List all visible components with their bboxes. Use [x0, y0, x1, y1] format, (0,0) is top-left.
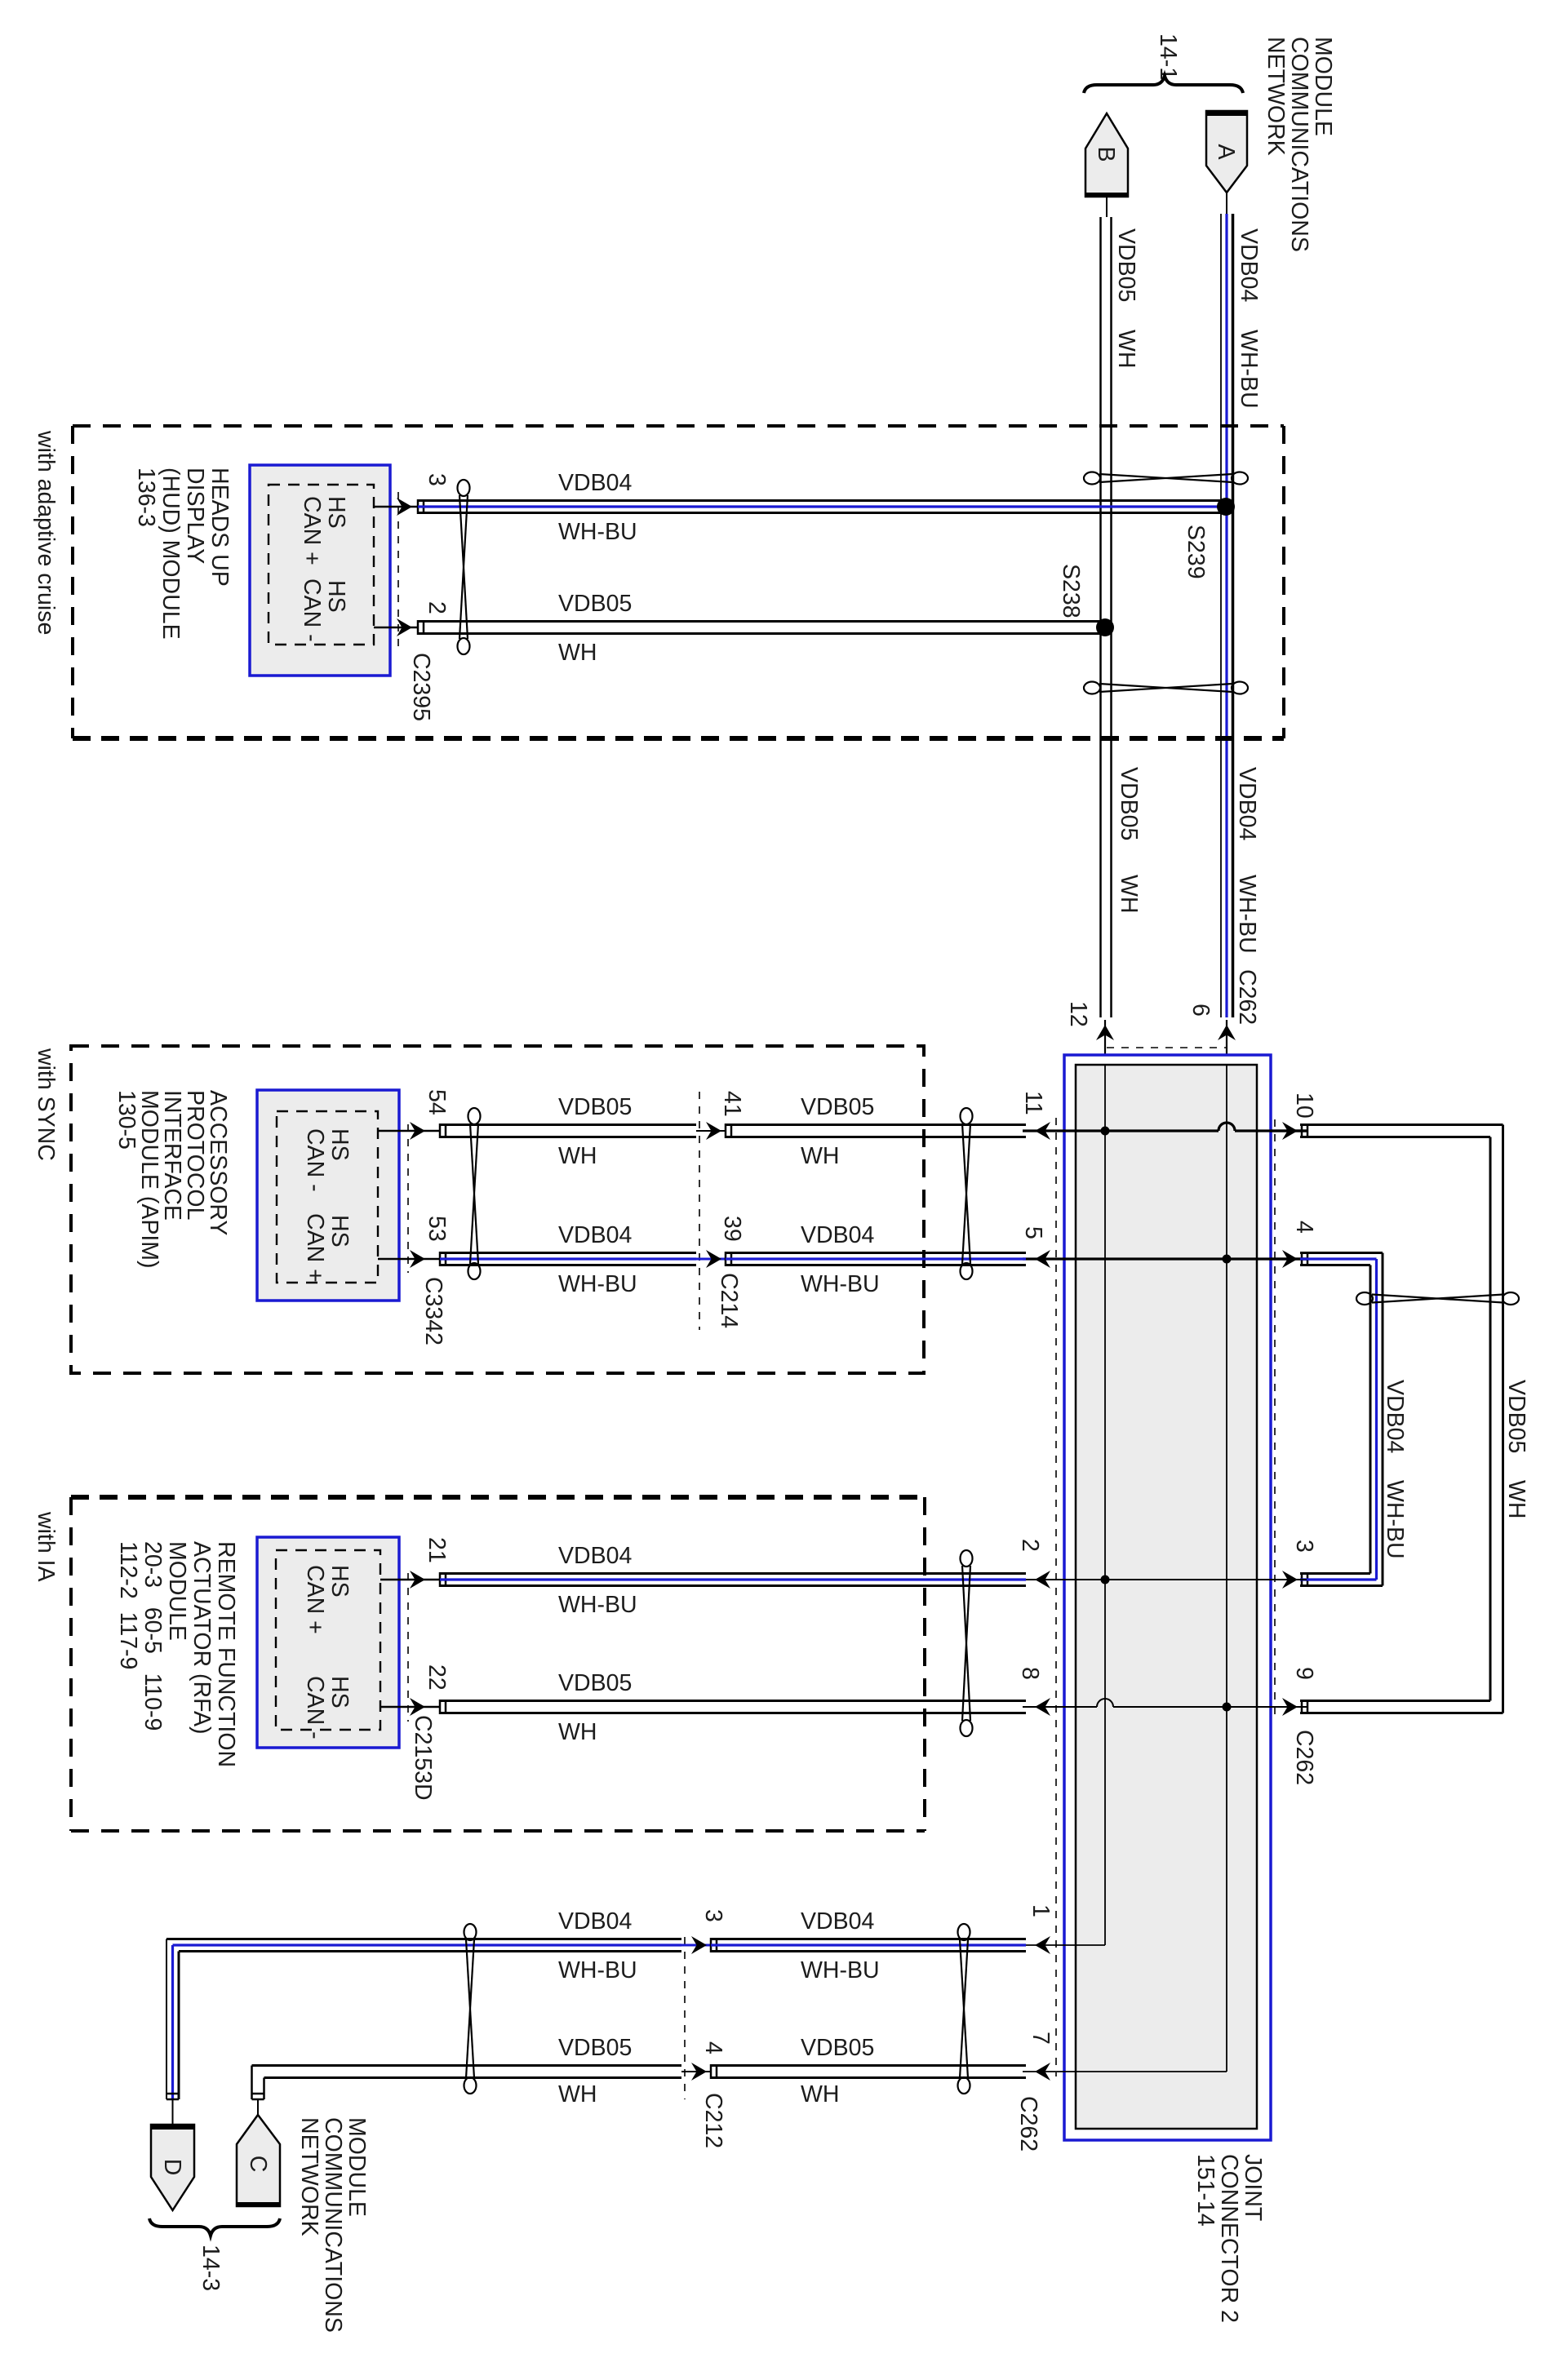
svg-text:151-14: 151-14 — [1192, 2154, 1219, 2227]
svg-text:with adaptive cruise: with adaptive cruise — [33, 430, 59, 635]
svg-text:CAN -: CAN - — [302, 1128, 328, 1192]
svg-text:VDB05: VDB05 — [558, 2035, 632, 2061]
svg-text:D: D — [159, 2159, 185, 2176]
svg-text:HS: HS — [326, 1676, 353, 1709]
svg-text:22: 22 — [424, 1664, 450, 1691]
svg-text:C262: C262 — [1234, 969, 1260, 1025]
svg-text:COMMUNICATIONS: COMMUNICATIONS — [320, 2117, 346, 2333]
svg-text:A: A — [1213, 144, 1239, 159]
svg-text:39: 39 — [719, 1216, 745, 1242]
svg-text:VDB05: VDB05 — [558, 1670, 632, 1696]
svg-text:with SYNC: with SYNC — [33, 1048, 59, 1161]
svg-text:VDB05: VDB05 — [801, 1094, 874, 1120]
svg-text:VDB04: VDB04 — [558, 1908, 632, 1935]
svg-text:with IA: with IA — [33, 1511, 59, 1582]
svg-text:WH-BU: WH-BU — [558, 1957, 637, 1983]
svg-text:C2395: C2395 — [408, 653, 434, 721]
svg-text:WH-BU: WH-BU — [1382, 1480, 1408, 1559]
svg-text:8: 8 — [1017, 1667, 1043, 1680]
svg-text:NETWORK: NETWORK — [1263, 37, 1289, 156]
svg-text:S238: S238 — [1058, 564, 1084, 618]
svg-text:WH: WH — [801, 1143, 839, 1169]
svg-text:HEADS UP: HEADS UP — [206, 468, 233, 587]
svg-text:1: 1 — [1028, 1904, 1054, 1917]
svg-text:MODULE: MODULE — [344, 2117, 370, 2217]
svg-text:VDB04: VDB04 — [558, 470, 632, 496]
svg-text:WH-BU: WH-BU — [801, 1271, 880, 1297]
svg-text:WH: WH — [1116, 875, 1142, 913]
svg-text:5: 5 — [1020, 1226, 1046, 1239]
svg-text:VDB04: VDB04 — [1234, 767, 1260, 840]
svg-text:WH-BU: WH-BU — [558, 1592, 637, 1618]
svg-text:VDB04: VDB04 — [1382, 1380, 1408, 1453]
svg-text:4: 4 — [700, 2041, 726, 2054]
svg-text:HS: HS — [326, 1215, 353, 1248]
svg-text:CAN -: CAN - — [299, 578, 325, 642]
svg-text:S239: S239 — [1183, 525, 1209, 579]
svg-text:136-3: 136-3 — [133, 468, 159, 527]
svg-text:REMOTE FUNCTION: REMOTE FUNCTION — [213, 1541, 239, 1767]
svg-text:WH: WH — [558, 1719, 597, 1745]
svg-text:C2153D: C2153D — [410, 1715, 436, 1801]
svg-text:CAN +: CAN + — [299, 496, 325, 565]
svg-text:COMMUNICATIONS: COMMUNICATIONS — [1286, 37, 1312, 252]
svg-text:VDB05: VDB05 — [1113, 228, 1139, 302]
svg-text:C262: C262 — [1291, 1730, 1317, 1785]
svg-text:20-3 60-5 110-9: 20-3 60-5 110-9 — [140, 1541, 166, 1731]
svg-text:C: C — [245, 2156, 271, 2173]
svg-text:WH-BU: WH-BU — [558, 519, 637, 545]
svg-text:WH-BU: WH-BU — [558, 1271, 637, 1297]
svg-text:14-1: 14-1 — [1155, 33, 1181, 80]
svg-text:MODULE: MODULE — [1310, 37, 1336, 136]
svg-text:HS: HS — [323, 580, 349, 613]
svg-text:WH: WH — [558, 1143, 597, 1169]
svg-text:ACTUATOR (RFA): ACTUATOR (RFA) — [189, 1541, 215, 1734]
svg-text:NETWORK: NETWORK — [296, 2117, 322, 2236]
svg-text:MODULE: MODULE — [164, 1541, 190, 1641]
svg-text:WH: WH — [1113, 330, 1139, 368]
svg-text:CAN +: CAN + — [302, 1565, 328, 1634]
svg-text:VDB04: VDB04 — [558, 1543, 632, 1569]
svg-text:HS: HS — [323, 496, 349, 529]
svg-text:VDB04: VDB04 — [1236, 228, 1262, 302]
svg-text:2: 2 — [424, 601, 450, 614]
svg-text:JOINT: JOINT — [1240, 2154, 1266, 2221]
svg-text:VDB04: VDB04 — [801, 1222, 874, 1248]
svg-text:VDB05: VDB05 — [1503, 1380, 1529, 1453]
svg-text:4: 4 — [1291, 1221, 1317, 1234]
svg-text:WH: WH — [1503, 1480, 1529, 1518]
svg-text:VDB05: VDB05 — [801, 2035, 874, 2061]
svg-text:2: 2 — [1017, 1539, 1043, 1552]
svg-text:54: 54 — [424, 1089, 450, 1115]
svg-text:VDB04: VDB04 — [558, 1222, 632, 1248]
svg-text:B: B — [1093, 146, 1119, 162]
svg-text:CAN -: CAN - — [302, 1676, 328, 1740]
svg-text:CAN +: CAN + — [302, 1213, 328, 1283]
svg-text:WH-BU: WH-BU — [801, 1957, 880, 1983]
svg-text:53: 53 — [424, 1216, 450, 1242]
svg-text:C3342: C3342 — [420, 1277, 446, 1345]
svg-text:WH-BU: WH-BU — [1234, 875, 1260, 954]
svg-text:10: 10 — [1291, 1092, 1317, 1119]
svg-text:3: 3 — [1291, 1540, 1317, 1553]
svg-text:21: 21 — [424, 1537, 450, 1563]
svg-text:WH: WH — [558, 640, 597, 666]
svg-text:6: 6 — [1187, 1004, 1214, 1017]
svg-text:(HUD) MODULE: (HUD) MODULE — [158, 468, 184, 640]
svg-text:3: 3 — [424, 473, 450, 486]
svg-text:CONNECTOR 2: CONNECTOR 2 — [1216, 2154, 1242, 2323]
svg-text:WH: WH — [558, 2081, 597, 2107]
svg-text:DISPLAY: DISPLAY — [182, 468, 208, 564]
svg-text:C212: C212 — [700, 2093, 726, 2148]
svg-text:HS: HS — [326, 1565, 353, 1598]
svg-text:HS: HS — [326, 1128, 353, 1161]
svg-text:14-3: 14-3 — [198, 2245, 224, 2291]
svg-text:12: 12 — [1065, 1001, 1091, 1027]
svg-text:3: 3 — [700, 1909, 726, 1922]
svg-text:C262: C262 — [1015, 2096, 1041, 2152]
svg-text:C214: C214 — [716, 1273, 742, 1328]
svg-text:VDB05: VDB05 — [1116, 767, 1142, 840]
svg-text:41: 41 — [719, 1091, 745, 1117]
svg-text:11: 11 — [1020, 1091, 1046, 1115]
svg-text:9: 9 — [1291, 1667, 1317, 1680]
svg-text:130-5: 130-5 — [113, 1090, 140, 1150]
svg-text:112-2 117-9: 112-2 117-9 — [115, 1541, 141, 1669]
svg-text:WH: WH — [801, 2081, 839, 2107]
svg-text:VDB05: VDB05 — [558, 1094, 632, 1120]
svg-text:VDB05: VDB05 — [558, 591, 632, 617]
svg-text:VDB04: VDB04 — [801, 1908, 874, 1935]
svg-text:WH-BU: WH-BU — [1236, 330, 1262, 409]
svg-text:7: 7 — [1028, 2032, 1054, 2045]
